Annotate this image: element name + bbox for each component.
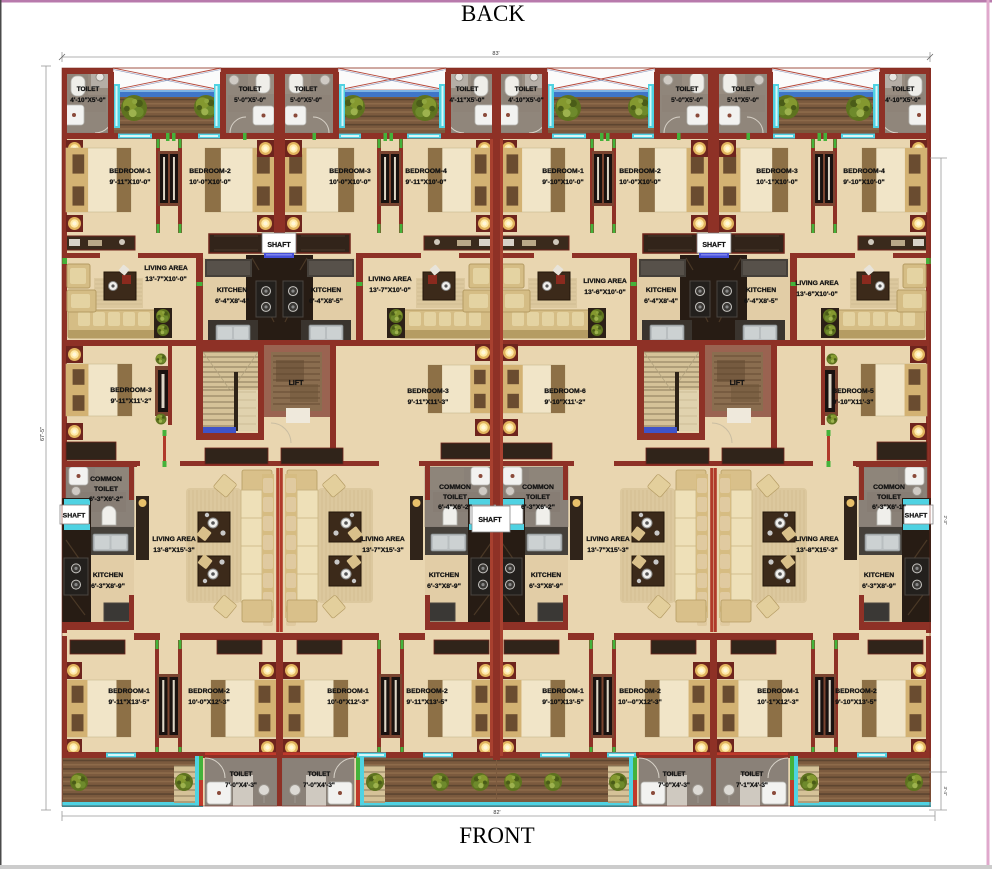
svg-text:TOILET: TOILET [526,494,551,501]
svg-text:LIVING AREA: LIVING AREA [361,536,405,543]
svg-text:BEDROOM-2: BEDROOM-2 [189,168,231,175]
svg-text:TOILET: TOILET [732,86,755,93]
svg-text:67'-5": 67'-5" [40,427,46,441]
svg-text:4'-10"X5'-0": 4'-10"X5'-0" [885,97,920,104]
svg-text:4'-11"X5'-0": 4'-11"X5'-0" [449,97,484,104]
svg-text:KITCHEN: KITCHEN [93,572,123,579]
svg-text:TOILET: TOILET [892,86,915,93]
svg-text:BEDROOM-1: BEDROOM-1 [108,688,150,695]
svg-text:10'-0"X10'-0": 10'-0"X10'-0" [329,179,370,186]
svg-text:6'-3"X6'-2": 6'-3"X6'-2" [89,496,123,503]
svg-text:TOILET: TOILET [676,86,699,93]
svg-text:BEDROOM-2: BEDROOM-2 [619,168,661,175]
svg-text:10'-1"X10'-0": 10'-1"X10'-0" [756,179,797,186]
svg-text:BEDROOM-2: BEDROOM-2 [406,688,448,695]
svg-text:13'-7"X10'-0": 13'-7"X10'-0" [145,276,186,283]
svg-text:6'-3"X8'-9": 6'-3"X8'-9" [862,583,896,590]
svg-text:BEDROOM-2: BEDROOM-2 [835,688,877,695]
svg-text:BEDROOM-3: BEDROOM-3 [407,388,449,395]
svg-text:TOILET: TOILET [308,771,331,778]
svg-text:BEDROOM-1: BEDROOM-1 [109,168,151,175]
svg-text:13'-7"X10'-0": 13'-7"X10'-0" [369,287,410,294]
svg-text:SHAFT: SHAFT [63,513,87,520]
svg-text:5'-0"X5'-0": 5'-0"X5'-0" [234,97,266,104]
svg-text:9'-11"X10'-0": 9'-11"X10'-0" [405,179,446,186]
svg-text:9'-10"X10'-0": 9'-10"X10'-0" [542,179,583,186]
svg-text:7'-0"X4'-3": 7'-0"X4'-3" [225,782,257,789]
svg-text:KITCHEN: KITCHEN [311,287,341,294]
svg-text:LIVING AREA: LIVING AREA [795,280,839,287]
svg-text:BEDROOM-1: BEDROOM-1 [542,168,584,175]
svg-text:BEDROOM-1: BEDROOM-1 [327,688,369,695]
svg-text:TOILET: TOILET [443,494,468,501]
svg-text:9'-10"X10'-0": 9'-10"X10'-0" [843,179,884,186]
svg-text:BEDROOM-3: BEDROOM-3 [110,387,152,394]
svg-text:BEDROOM-2: BEDROOM-2 [188,688,230,695]
svg-text:4'-10"X5'-0": 4'-10"X5'-0" [508,97,543,104]
svg-text:LIFT: LIFT [289,380,304,387]
svg-text:TOILET: TOILET [877,494,902,501]
svg-text:9'-10"X13'-5": 9'-10"X13'-5" [542,699,583,706]
svg-text:3'-4": 3'-4" [943,787,948,796]
svg-text:BEDROOM-1: BEDROOM-1 [757,688,799,695]
svg-text:TOILET: TOILET [94,486,119,493]
svg-text:COMMON: COMMON [873,484,905,491]
svg-text:9'-10"X11'-2": 9'-10"X11'-2" [544,399,585,406]
svg-text:BEDROOM-1: BEDROOM-1 [542,688,584,695]
svg-text:FRONT: FRONT [459,823,534,848]
svg-text:KITCHEN: KITCHEN [217,287,247,294]
svg-text:6'-4"X8'-5": 6'-4"X8'-5" [309,298,343,305]
svg-text:9'-11"X11'-3": 9'-11"X11'-3" [408,399,449,406]
svg-text:COMMON: COMMON [90,476,122,483]
svg-text:10'-0"X12'-3": 10'-0"X12'-3" [327,699,368,706]
svg-text:2'-3": 2'-3" [943,516,948,525]
svg-text:5'-0"X5'-0": 5'-0"X5'-0" [290,97,322,104]
svg-text:13'-8"X15'-3": 13'-8"X15'-3" [796,547,837,554]
svg-text:KITCHEN: KITCHEN [429,572,459,579]
svg-text:7'-1"X4'-3": 7'-1"X4'-3" [736,782,768,789]
svg-text:TOILET: TOILET [230,771,253,778]
svg-text:6'-3"X8'-9": 6'-3"X8'-9" [529,583,563,590]
svg-text:6'-3"X6'-2": 6'-3"X6'-2" [521,504,555,511]
svg-text:9'-11"X13'-5": 9'-11"X13'-5" [108,699,149,706]
svg-text:LIVING AREA: LIVING AREA [583,278,627,285]
svg-text:LIFT: LIFT [730,380,745,387]
svg-text:LIVING AREA: LIVING AREA [144,265,188,272]
svg-text:LIVING AREA: LIVING AREA [368,276,412,283]
svg-text:TOILET: TOILET [77,86,100,93]
svg-text:SHAFT: SHAFT [905,513,929,520]
svg-text:6'-3"X8'-9": 6'-3"X8'-9" [427,583,461,590]
svg-text:9'-10"X11'-3": 9'-10"X11'-3" [832,399,873,406]
svg-text:COMMON: COMMON [439,484,471,491]
svg-text:7'-0"X4'-3": 7'-0"X4'-3" [658,782,690,789]
svg-text:LIVING AREA: LIVING AREA [586,536,630,543]
svg-text:6'-4"X8'-4": 6'-4"X8'-4" [644,298,678,305]
svg-text:TOILET: TOILET [239,86,262,93]
svg-text:BEDROOM-4: BEDROOM-4 [405,168,447,175]
svg-text:KITCHEN: KITCHEN [646,287,676,294]
svg-text:BEDROOM-5: BEDROOM-5 [832,388,874,395]
svg-text:COMMON: COMMON [522,484,554,491]
svg-text:6'-4"X6'-2": 6'-4"X6'-2" [438,504,472,511]
svg-text:SHAFT: SHAFT [702,242,726,249]
svg-text:83': 83' [492,51,499,57]
svg-text:10'-0"X10'-0": 10'-0"X10'-0" [619,179,660,186]
svg-text:BACK: BACK [461,1,525,26]
svg-text:10'-0"X10'-0": 10'-0"X10'-0" [189,179,230,186]
svg-text:KITCHEN: KITCHEN [746,287,776,294]
svg-text:TOILET: TOILET [741,771,764,778]
svg-text:5'-1"X5'-0": 5'-1"X5'-0" [727,97,759,104]
svg-text:6'-3"X6'-1": 6'-3"X6'-1" [872,504,906,511]
svg-text:SHAFT: SHAFT [267,242,291,249]
svg-text:TOILET: TOILET [515,86,538,93]
svg-text:LIVING AREA: LIVING AREA [795,536,839,543]
svg-text:BEDROOM-4: BEDROOM-4 [843,168,885,175]
svg-text:13'-8"X15'-3": 13'-8"X15'-3" [153,547,194,554]
svg-text:TOILET: TOILET [456,86,479,93]
svg-text:13'-7"X15'-3": 13'-7"X15'-3" [362,547,403,554]
svg-text:6'-3"X8'-9": 6'-3"X8'-9" [91,583,125,590]
svg-text:5'-0"X5'-0": 5'-0"X5'-0" [671,97,703,104]
svg-text:9'-11"X13'-5": 9'-11"X13'-5" [406,699,447,706]
svg-text:BEDROOM-2: BEDROOM-2 [619,688,661,695]
svg-text:10'-0"X12'-3": 10'-0"X12'-3" [188,699,229,706]
svg-text:13'-6"X10'-0": 13'-6"X10'-0" [584,289,625,296]
svg-text:BEDROOM-3: BEDROOM-3 [329,168,371,175]
svg-text:6'-4"X8'-4": 6'-4"X8'-4" [215,298,249,305]
svg-text:13'-6"X10'-0": 13'-6"X10'-0" [796,291,837,298]
svg-text:KITCHEN: KITCHEN [864,572,894,579]
svg-text:BEDROOM-3: BEDROOM-3 [756,168,798,175]
svg-text:KITCHEN: KITCHEN [531,572,561,579]
svg-text:9'-11"X11'-2": 9'-11"X11'-2" [111,398,152,405]
svg-text:TOILET: TOILET [663,771,686,778]
svg-text:BEDROOM-6: BEDROOM-6 [544,388,586,395]
svg-text:82': 82' [493,810,500,816]
svg-text:TOILET: TOILET [295,86,318,93]
svg-text:7'-0"X4'-3": 7'-0"X4'-3" [303,782,335,789]
svg-text:10'--0"X12'-3": 10'--0"X12'-3" [618,699,662,706]
svg-text:4'-10"X5'-0": 4'-10"X5'-0" [70,97,105,104]
svg-text:13'-7"X15'-3": 13'-7"X15'-3" [587,547,628,554]
svg-text:SHAFT: SHAFT [478,517,502,524]
svg-text:10'-1"X12'-3": 10'-1"X12'-3" [757,699,798,706]
svg-text:LIVING AREA: LIVING AREA [152,536,196,543]
svg-text:9'-11"X10'-0": 9'-11"X10'-0" [109,179,150,186]
svg-text:6'-4"X8'-5": 6'-4"X8'-5" [744,298,778,305]
svg-text:9'-10"X13'-5": 9'-10"X13'-5" [835,699,876,706]
